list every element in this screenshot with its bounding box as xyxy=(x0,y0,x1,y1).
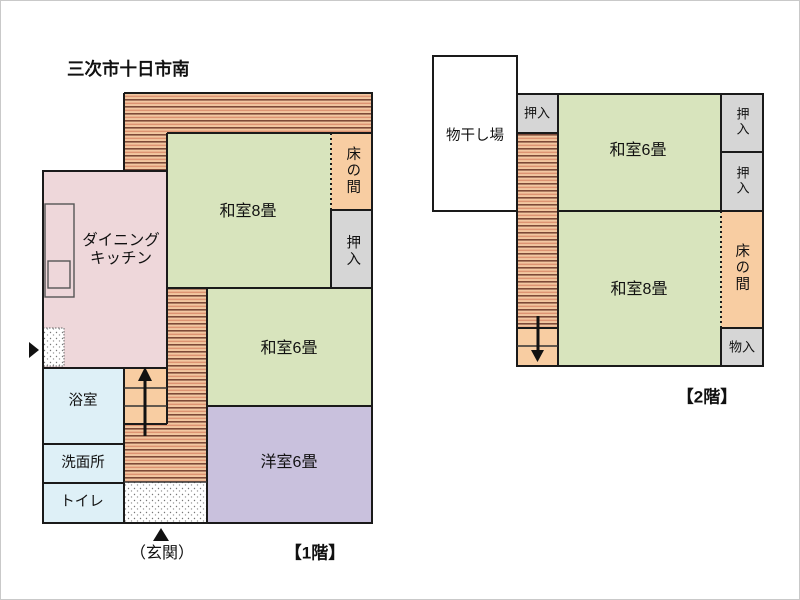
label-bathroom: 浴室 xyxy=(69,394,98,409)
up-arrow-shaft xyxy=(144,378,147,436)
down-arrow-shaft xyxy=(537,316,540,352)
corridor-2f xyxy=(517,133,558,328)
entrance-area xyxy=(124,482,207,523)
label-toilet: トイレ xyxy=(60,495,104,510)
label-washitsu6-2f: 和室6畳 xyxy=(610,143,667,159)
label-dining-line1: ダイニング xyxy=(82,232,160,250)
label-tokonoma-1f: 床の間 xyxy=(345,146,360,196)
label-floor1: 【1階】 xyxy=(285,545,345,562)
entrance-triangle-icon xyxy=(153,528,169,541)
plan-title: 三次市十日市南 xyxy=(67,56,190,81)
label-youshitsu6-1f: 洋室6畳 xyxy=(261,455,318,471)
label-oshiire-2f-right-lower: 押入 xyxy=(736,166,749,196)
floorplan-drawing xyxy=(1,1,800,600)
label-floor2: 【2階】 xyxy=(677,389,737,406)
kitchen-door-opening xyxy=(43,328,64,366)
label-dining-line2: キッチン xyxy=(82,250,160,268)
label-oshiire-2f-right-upper: 押入 xyxy=(736,107,749,137)
label-washroom: 洗面所 xyxy=(61,456,105,471)
label-oshiire-1f: 押入 xyxy=(345,235,360,268)
label-entrance: （玄関） xyxy=(130,546,194,562)
label-washitsu8-2f: 和室8畳 xyxy=(611,282,668,298)
label-washitsu6-1f: 和室6畳 xyxy=(261,341,318,357)
label-dining-kitchen: ダイニング キッチン xyxy=(82,232,160,268)
engawa-left-strip xyxy=(124,133,167,171)
left-door-triangle-icon xyxy=(29,342,39,358)
corridor-1f xyxy=(167,288,207,482)
floorplan-canvas: 三次市十日市南 ダイニング キッチン 和室8畳 和室6畳 洋室6畳 床の間 押入… xyxy=(0,0,800,600)
label-storage-2f: 物入 xyxy=(729,341,755,354)
label-drying-area: 物干し場 xyxy=(446,129,504,144)
label-washitsu8-1f: 和室8畳 xyxy=(220,204,277,220)
engawa-top-band xyxy=(124,93,372,133)
label-oshiire-2f-top: 押入 xyxy=(524,107,550,120)
label-tokonoma-2f: 床の間 xyxy=(734,243,749,293)
